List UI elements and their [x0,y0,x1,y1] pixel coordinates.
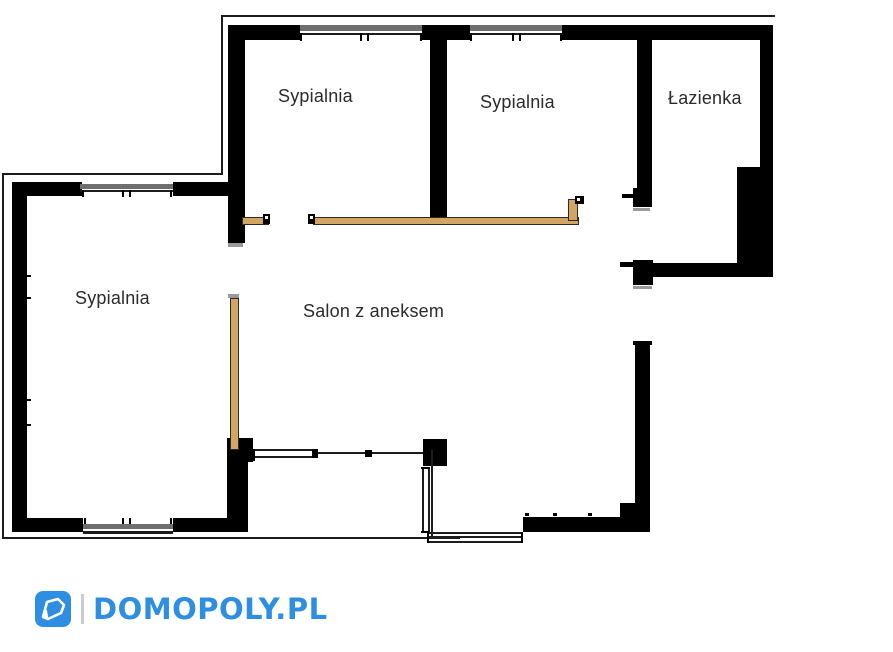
wall-tick [26,275,31,277]
window-tick [170,190,172,197]
door-jamb [575,196,584,204]
brand-logo: DOMOPOLY.PL [35,591,328,627]
window-frame-line [80,190,173,192]
window-frame-line [422,467,424,533]
floor-plan-page: Sypialnia Sypialnia Łazienka Sypialnia S… [0,0,893,652]
wall-top-c [562,25,773,40]
window-frame-line [470,33,562,35]
outline-top [221,15,775,17]
jamb-tick [622,194,633,198]
window-frame-line [427,532,523,534]
house-pencil-glyph [35,591,71,627]
window-tick [360,33,362,41]
window-tick [300,33,302,41]
wall-tick [26,399,31,401]
outline-left-step [221,15,223,175]
brand-text: DOMOPOLY.PL [93,591,328,627]
domopoly-house-icon [35,591,71,627]
outline-step-horizontal [2,173,223,175]
door-jamb [365,450,372,457]
wall-bathroom-left [637,26,652,205]
window-tick [470,33,472,41]
door-end-mark [228,294,239,298]
window-tick [253,449,255,461]
wall-salon-right-step [620,503,636,532]
room-label-bedroom-top-left: Sypialnia [278,86,353,107]
outline-bottom [2,537,460,539]
jamb-shadow [633,286,652,289]
window-tick [421,467,430,469]
window-tick [512,33,514,41]
wall-end-shadow [228,243,243,247]
balcony-door-line [253,456,318,458]
window-tick [367,33,369,41]
wall-end-cap [633,341,652,345]
wall-bedroom3-bottom-a [12,518,83,532]
jamb-shadow [633,208,650,211]
wall-bedroom-divider [430,26,447,223]
outline-left [2,173,4,539]
wall-bedroom1-left [228,25,245,243]
wall-tick [525,513,529,516]
wall-bathroom-block [737,167,762,277]
window-tick [560,33,562,41]
window-tick [129,190,131,197]
wall-tick [553,513,557,516]
pillar-balcony-right [423,439,447,466]
window-tick [519,33,521,41]
window-tick [420,33,422,41]
window-glass [80,184,173,189]
wall-tick [26,297,31,299]
window-frame-line [427,536,523,538]
wall-tick [26,424,31,426]
wall-salon-left-lower [227,456,248,532]
door-panel-bedroom-left [230,298,239,450]
room-label-living-room: Salon z aneksem [303,301,444,322]
window-tick [427,532,429,543]
wall-tick [588,513,592,516]
door-jamb [633,188,652,207]
window-frame-line [427,541,523,543]
door-panel-long [313,217,579,225]
window-tick [521,532,523,543]
balcony-right-line [431,450,433,537]
brand-separator [81,594,84,624]
window-glass [300,25,422,31]
window-glass [470,25,562,31]
window-sill-line [83,533,173,534]
wall-salon-right [635,345,650,532]
wall-bathroom-bottom [645,263,773,277]
wall-bedroom3-left [12,182,27,532]
room-label-bedroom-top-middle: Sypialnia [480,92,555,113]
door-jamb [308,214,315,224]
room-label-bedroom-left: Sypialnia [75,288,150,309]
door-jamb [263,214,270,224]
balcony-door-line [253,449,318,451]
window-frame-line [428,467,430,533]
jamb-tick [620,262,633,267]
window-tick [82,190,84,197]
window-glass [83,524,173,529]
door-jamb [633,260,653,285]
room-label-bathroom: Łazienka [668,88,742,109]
window-tick [122,190,124,197]
wall-bedroom3-top-b [173,182,245,196]
